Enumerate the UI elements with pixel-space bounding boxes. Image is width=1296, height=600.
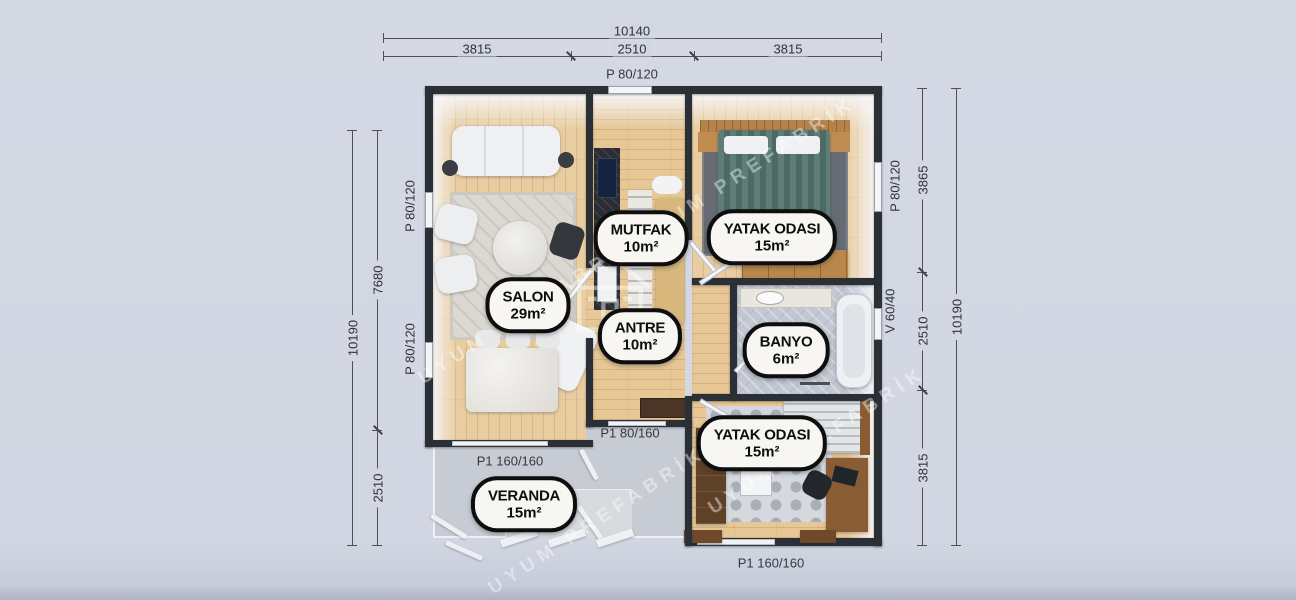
label-window-top: P 80/120 [606, 67, 658, 82]
room-area: 15m² [488, 505, 560, 522]
window-left-lower [425, 342, 433, 378]
coffee-table [493, 221, 547, 275]
room-badge-yatak2: YATAK ODASI 15m² [697, 415, 827, 471]
window-right-bedroom [874, 162, 882, 212]
wall-kitchen-bedroom1 [685, 94, 692, 240]
dim-tick [917, 88, 927, 89]
towel-rail [800, 382, 830, 385]
window-right-bath [874, 308, 882, 340]
sofa [452, 126, 560, 176]
dim-tick [951, 545, 961, 546]
dim-right-overall: 10190 [950, 294, 965, 340]
room-badge-veranda: VERANDA 15m² [471, 476, 577, 532]
dim-tick [881, 51, 882, 61]
dim-tick [383, 33, 384, 43]
entry-doormat [640, 398, 688, 418]
dim-tick [347, 545, 357, 546]
room-name: ANTRE [615, 319, 665, 336]
window-left-upper [425, 192, 433, 228]
room-area: 10m² [611, 239, 672, 256]
room-badge-yatak1: YATAK ODASI 15m² [707, 209, 837, 265]
dim-tick [383, 51, 384, 61]
dim-tick [951, 88, 961, 89]
dim-top-overall: 10140 [609, 24, 655, 39]
dim-top-seg-1: 3815 [458, 42, 497, 57]
dim-tick [881, 33, 882, 43]
side-table [442, 160, 458, 176]
veranda-post [445, 540, 484, 561]
wall-top [425, 86, 882, 94]
room-area: 6m² [760, 351, 813, 368]
dim-right-seg-1: 3865 [916, 161, 931, 200]
slider-panel-wood [800, 530, 836, 543]
room-name: YATAK ODASI [714, 426, 810, 443]
label-window-left-lower: P 80/120 [403, 318, 418, 380]
room-name: BANYO [760, 333, 813, 350]
room-badge-mutfak: MUTFAK 10m² [594, 210, 689, 266]
side-table [558, 152, 574, 168]
room-name: YATAK ODASI [724, 220, 820, 237]
dim-right-seg-3: 3815 [916, 449, 931, 488]
dim-right-seg-2: 2510 [916, 312, 931, 351]
floor-plan-canvas: 10140 3815 2510 3815 P 80/120 10190 7680… [0, 0, 1296, 600]
dim-tick [347, 130, 357, 131]
window-top [608, 86, 652, 94]
slider-salon-veranda [452, 441, 548, 446]
wall-bedroom1-bath [692, 278, 874, 285]
wall-bath-bedroom2 [692, 394, 874, 401]
room-area: 10m² [615, 337, 665, 354]
room-badge-antre: ANTRE 10m² [598, 308, 682, 364]
label-door-bedroom-terrace: P1 160/160 [738, 556, 805, 571]
dim-top-seg-3: 3815 [769, 42, 808, 57]
wall-hall-bath [730, 285, 737, 400]
bath-vanity [740, 288, 832, 308]
label-door-salon-veranda: P1 160/160 [477, 454, 544, 469]
room-area: 29m² [502, 306, 553, 323]
pillow [724, 136, 768, 154]
dim-tick [372, 130, 382, 131]
kitchen-chair [652, 176, 682, 194]
room-area: 15m² [714, 444, 810, 461]
cooktop [597, 158, 617, 198]
dim-tick [372, 545, 382, 546]
room-name: MUTFAK [611, 221, 672, 238]
nightstand [698, 132, 718, 152]
bottom-shadow-band [0, 584, 1296, 600]
label-window-left-upper: P 80/120 [403, 175, 418, 237]
label-door-entry: P1 80/160 [600, 426, 659, 441]
dining-table [466, 348, 558, 412]
pillow [776, 136, 820, 154]
label-window-right-bedroom: P 80/120 [888, 155, 903, 217]
room-name: SALON [502, 288, 553, 305]
dim-tick [917, 545, 927, 546]
armchair [433, 253, 479, 295]
dim-top-seg-2: 2510 [613, 42, 652, 57]
room-name: VERANDA [488, 487, 560, 504]
dining-chair [476, 330, 500, 348]
room-badge-banyo: BANYO 6m² [743, 322, 830, 378]
bed2-headboard [860, 397, 870, 455]
bath-sink [756, 291, 784, 305]
dim-left-seg-2: 2510 [371, 469, 386, 508]
dim-left-overall: 10190 [346, 315, 361, 361]
bathtub-basin [843, 304, 865, 378]
wall-salon-antre [586, 338, 593, 427]
wall-antre-bedroom2 [685, 396, 692, 546]
room-area: 15m² [724, 238, 820, 255]
nightstand [830, 132, 850, 152]
label-vent-right-bath: V 60/40 [883, 284, 898, 339]
room-badge-salon: SALON 29m² [485, 277, 570, 333]
wall-left [425, 86, 433, 447]
dim-left-seg-1: 7680 [371, 261, 386, 300]
